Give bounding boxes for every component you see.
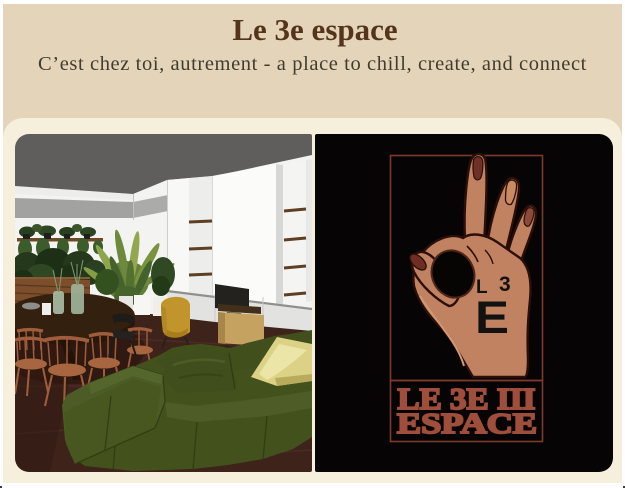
svg-text:E: E [475, 292, 509, 343]
svg-text:ESPACE: ESPACE [397, 408, 537, 440]
